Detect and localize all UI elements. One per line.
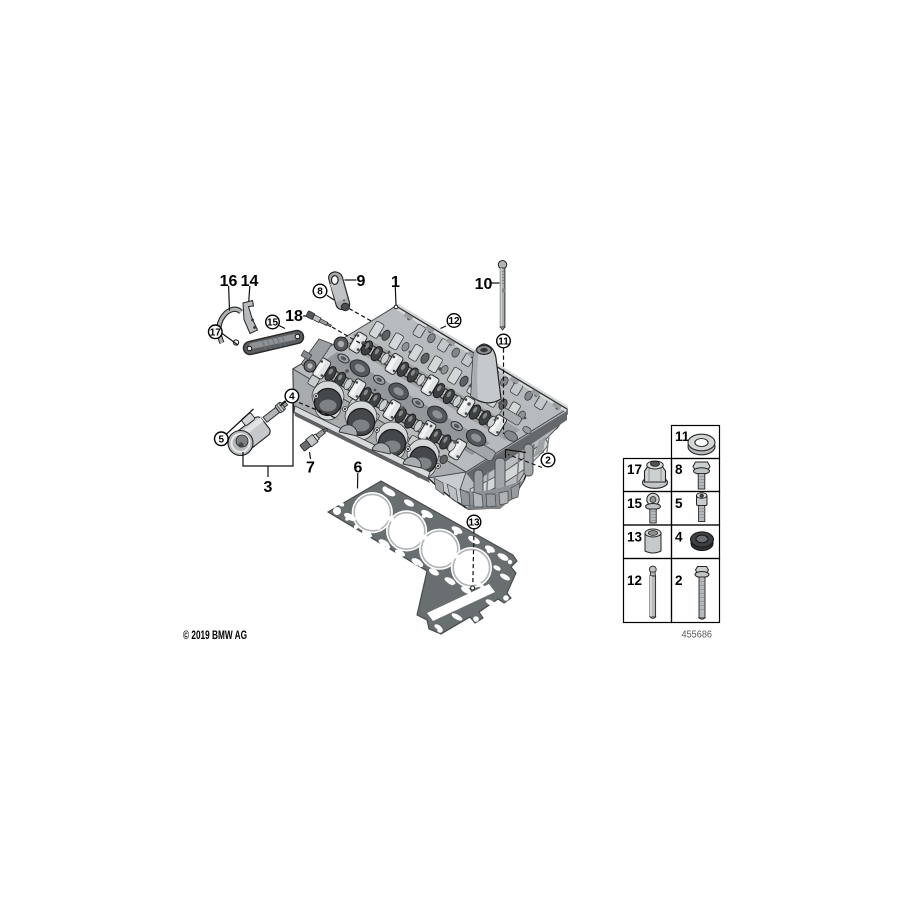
svg-text:1: 1 bbox=[391, 274, 400, 291]
svg-text:6: 6 bbox=[354, 460, 363, 477]
svg-text:15: 15 bbox=[627, 496, 643, 511]
svg-text:4: 4 bbox=[289, 392, 295, 403]
svg-text:10: 10 bbox=[475, 276, 493, 293]
svg-text:2: 2 bbox=[545, 456, 551, 467]
svg-text:17: 17 bbox=[627, 462, 642, 477]
svg-text:8: 8 bbox=[317, 287, 323, 298]
svg-text:3: 3 bbox=[264, 479, 273, 496]
svg-text:5: 5 bbox=[219, 434, 225, 445]
svg-text:2: 2 bbox=[675, 573, 683, 588]
svg-text:12: 12 bbox=[627, 573, 642, 588]
svg-text:17: 17 bbox=[210, 327, 222, 338]
svg-text:8: 8 bbox=[675, 462, 683, 477]
svg-text:7: 7 bbox=[306, 460, 315, 477]
svg-text:5: 5 bbox=[675, 496, 683, 511]
svg-text:4: 4 bbox=[675, 530, 683, 545]
svg-text:© 2019 BMW AG: © 2019 BMW AG bbox=[183, 630, 247, 642]
svg-text:16: 16 bbox=[220, 273, 238, 290]
svg-text:9: 9 bbox=[357, 273, 366, 290]
svg-text:455686: 455686 bbox=[682, 629, 713, 641]
svg-text:12: 12 bbox=[448, 316, 460, 327]
svg-text:13: 13 bbox=[468, 518, 480, 529]
svg-text:15: 15 bbox=[267, 318, 279, 329]
svg-text:11: 11 bbox=[498, 337, 509, 348]
svg-text:18: 18 bbox=[285, 308, 303, 325]
svg-text:14: 14 bbox=[241, 273, 259, 290]
svg-text:13: 13 bbox=[627, 530, 643, 545]
